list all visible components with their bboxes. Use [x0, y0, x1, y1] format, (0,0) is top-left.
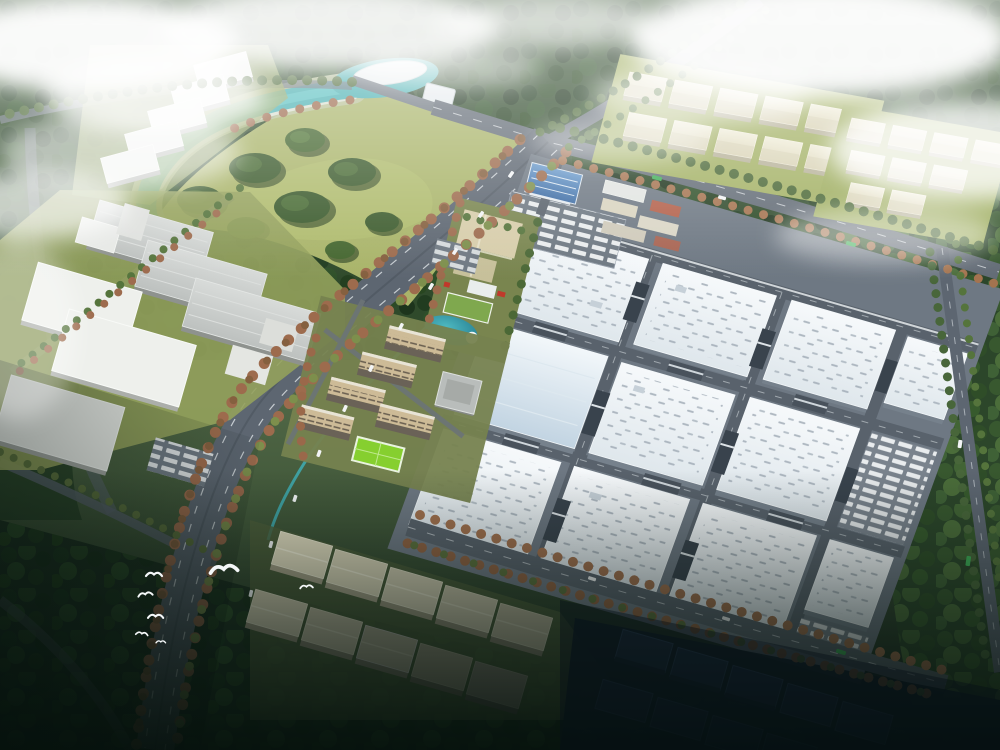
atmospheric-haze: [0, 0, 1000, 280]
aerial-rendering: [0, 0, 1000, 750]
